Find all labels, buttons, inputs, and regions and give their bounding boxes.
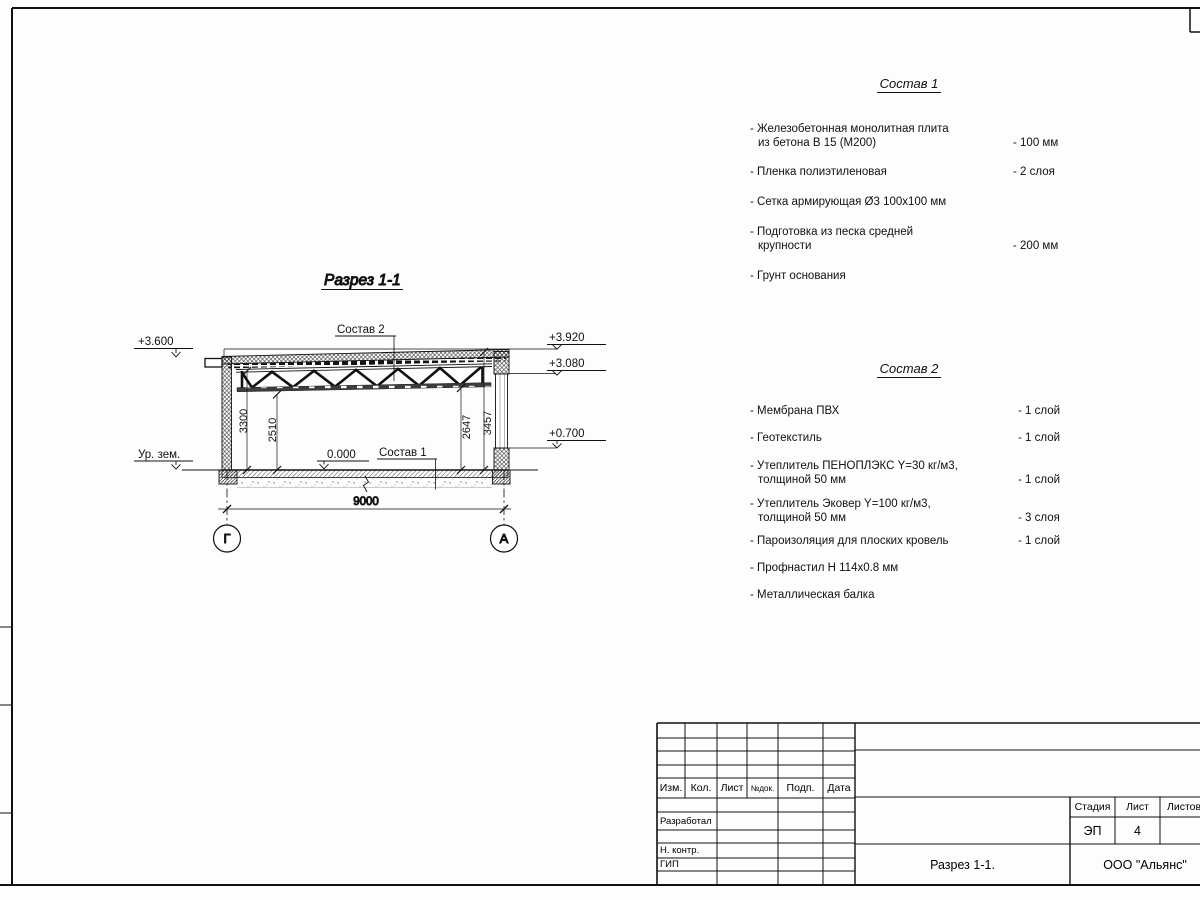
- tb-sheet-value: 4: [1115, 817, 1160, 844]
- sostav2-title-text: Состав 2: [877, 361, 942, 378]
- floor-slab: [219, 470, 510, 492]
- list-item: - Подготовка из песка средней крупности …: [750, 226, 1070, 253]
- tb-role-developed: Разработал: [657, 812, 720, 830]
- elev-3920: +3.920: [549, 332, 585, 344]
- list-item: - Геотекстиль - 1 слой: [750, 432, 1070, 446]
- tb-role-ncontrol: Н. контр.: [657, 843, 720, 858]
- list-item: - Утеплитель ПЕНОПЛЭКС Y=30 кг/м3, толщи…: [750, 460, 1070, 487]
- section-title: Разрез 1-1: [324, 272, 401, 289]
- item-value: - 2 слоя: [1013, 166, 1055, 180]
- tb-company: ООО "Альянс": [1070, 844, 1200, 885]
- left-wall: [222, 357, 232, 470]
- drawing-sheet: { "drawing": { "title": "Разрез 1-1", "e…: [0, 0, 1200, 900]
- list-item: - Мембрана ПВХ - 1 слой: [750, 405, 1070, 419]
- elev-3080: +3.080: [549, 358, 585, 370]
- ground-label: Ур. зем.: [138, 449, 180, 461]
- elev-3600: +3.600: [138, 336, 174, 348]
- sostav1-title: Состав 1: [748, 77, 1070, 91]
- tb-stage-value: ЭП: [1070, 817, 1115, 844]
- tb-sheets-header: Листов: [1160, 797, 1200, 817]
- roof-truss: [237, 367, 491, 392]
- sostav2-panel: Состав 2 - Мембрана ПВХ - 1 слой - Геоте…: [748, 355, 1070, 615]
- tb-header-izm: Изм.: [657, 778, 685, 798]
- tb-header-list: Лист: [717, 778, 747, 798]
- list-item: - Грунт основания: [750, 270, 1070, 284]
- list-item: - Железобетонная монолитная плита из бет…: [750, 123, 1070, 150]
- tb-header-podp: Подп.: [778, 778, 823, 798]
- tb-stage-header: Стадия: [1070, 797, 1115, 817]
- dim-3300: 3300: [238, 409, 250, 433]
- bottom-chord: [237, 383, 491, 392]
- sostav2-title: Состав 2: [748, 362, 1070, 376]
- item-value: - 1 слой: [1018, 405, 1060, 419]
- right-wall: [494, 352, 509, 471]
- dim-2510: 2510: [267, 418, 279, 442]
- list-item: - Пароизоляция для плоских кровель - 1 с…: [750, 535, 1070, 549]
- list-item: - Пленка полиэтиленовая - 2 слоя: [750, 166, 1070, 180]
- tb-doc-title: Разрез 1-1.: [855, 844, 1070, 885]
- ref-sostav2: Состав 2: [337, 324, 385, 336]
- ref-sostav1: Состав 1: [379, 447, 427, 459]
- item-value: - 1 слой: [1018, 474, 1060, 488]
- sand-layer: [237, 478, 493, 488]
- dim-3457: 3457: [482, 411, 494, 435]
- foundation-right: [493, 470, 511, 484]
- item-value: - 1 слой: [1018, 432, 1060, 446]
- item-value: - 1 слой: [1018, 535, 1060, 549]
- tb-header-kol: Кол.: [685, 778, 717, 798]
- tb-header-data: Дата: [823, 778, 855, 798]
- tb-sheet-header: Лист: [1115, 797, 1160, 817]
- section-drawing: Разрез 1-1: [134, 272, 606, 552]
- dim-2647: 2647: [461, 415, 473, 439]
- dim-9000: 9000: [353, 496, 379, 508]
- sostav1-title-text: Состав 1: [877, 76, 942, 93]
- zero-mark: 0.000: [327, 449, 356, 461]
- axis-label-left: Г: [223, 531, 230, 546]
- item-value: - 3 слоя: [1018, 512, 1060, 526]
- list-item: - Металлическая балка: [750, 589, 1070, 603]
- list-item: - Профнастил Н 114х0.8 мм: [750, 562, 1070, 576]
- elev-0700: +0.700: [549, 428, 585, 440]
- tb-role-gip: ГИП: [657, 858, 720, 871]
- axis-label-right: А: [500, 531, 509, 546]
- item-value: - 200 мм: [1013, 240, 1058, 254]
- tb-header-ndok: №док.: [747, 778, 778, 798]
- foundation-left: [219, 470, 237, 484]
- list-item: - Утеплитель Эковер Y=100 кг/м3, толщино…: [750, 498, 1070, 525]
- roof-package: [205, 350, 509, 373]
- sostav1-panel: Состав 1 - Железобетонная монолитная пли…: [748, 70, 1070, 300]
- beam-end: [205, 359, 222, 368]
- item-value: - 100 мм: [1013, 137, 1058, 151]
- list-item: - Сетка армирующая Ø3 100х100 мм: [750, 196, 1070, 210]
